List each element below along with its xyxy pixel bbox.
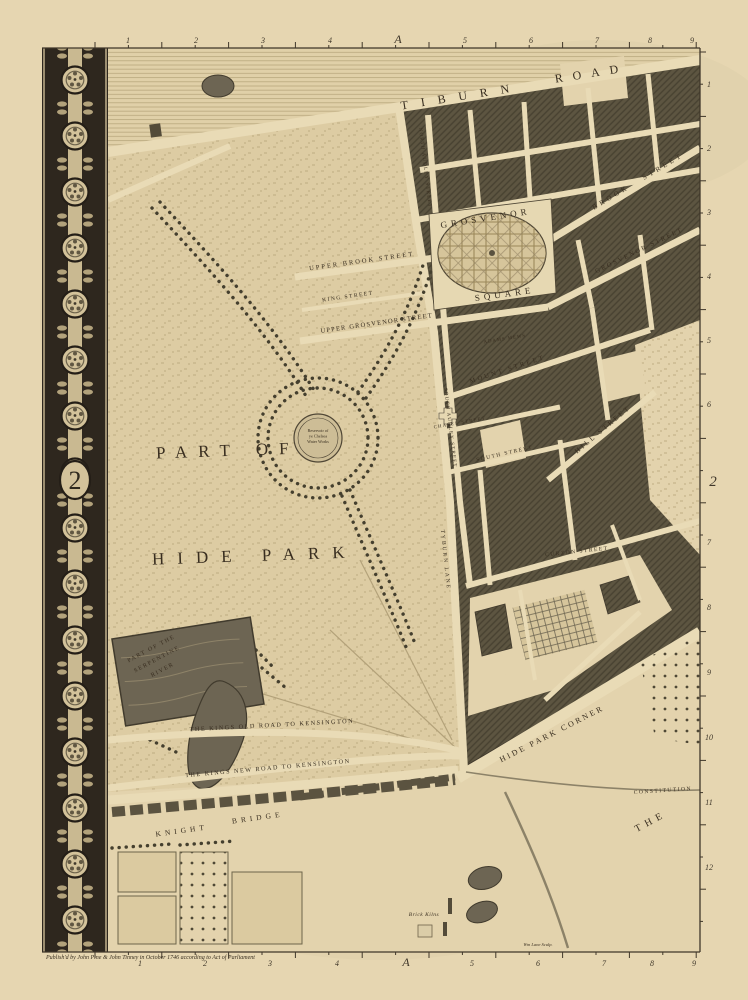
ruler-number: 2 <box>707 144 711 153</box>
ruler-number: 8 <box>648 36 652 45</box>
ruler-number: 3 <box>260 36 265 45</box>
ruler-number: 9 <box>692 959 696 968</box>
ruler-number: 2 <box>194 36 198 45</box>
map-plate <box>108 48 700 952</box>
label-brick-kilns: Brick Kilns <box>409 912 439 918</box>
ruler-number: A <box>393 32 402 46</box>
ruler-number: 1 <box>707 80 711 89</box>
ruler-number: 5 <box>707 336 711 345</box>
sheet-number-right: 2 <box>709 474 717 490</box>
tree-clump <box>202 75 234 97</box>
ruler-number: A <box>401 955 410 969</box>
ruler-number: 3 <box>267 959 272 968</box>
ruler-number: 8 <box>707 603 711 612</box>
ruler-number: 8 <box>650 959 654 968</box>
ruler-number: 6 <box>529 36 533 45</box>
ruler-number: 9 <box>690 36 694 45</box>
ruler-number: 6 <box>707 400 711 409</box>
ruler-number: 4 <box>707 272 711 281</box>
ruler-number: 12 <box>705 863 713 872</box>
ruler-number: 4 <box>335 959 339 968</box>
sheet-number-medallion: 2 <box>60 461 90 499</box>
ruler-number: 5 <box>463 36 467 45</box>
ruler-number: 3 <box>706 208 711 217</box>
label-reservoir-label: Reservoir ofye ChelseaWater Works <box>307 428 329 444</box>
ruler-number: 4 <box>328 36 332 45</box>
label-imprint: Publish'd by John Pine & John Tinney in … <box>45 954 255 961</box>
ruler-number: 6 <box>536 959 540 968</box>
ruler-number: 11 <box>705 798 712 807</box>
antique-map-sheet: 2 1234A567891234A56789123456789101112 2 … <box>0 0 748 1000</box>
sheet-number-left: 2 <box>69 466 82 495</box>
ruler-number: 9 <box>707 668 711 677</box>
ruler-number: 10 <box>705 733 713 742</box>
map-engraving: 2 1234A567891234A56789123456789101112 2 … <box>0 0 748 1000</box>
small-building <box>149 123 162 137</box>
label-engraver-mark: Wm Lane Sculp. <box>523 942 552 947</box>
ruler-number: 1 <box>126 36 130 45</box>
ornamental-border: 2 <box>42 48 108 952</box>
ruler-number: 5 <box>470 959 474 968</box>
